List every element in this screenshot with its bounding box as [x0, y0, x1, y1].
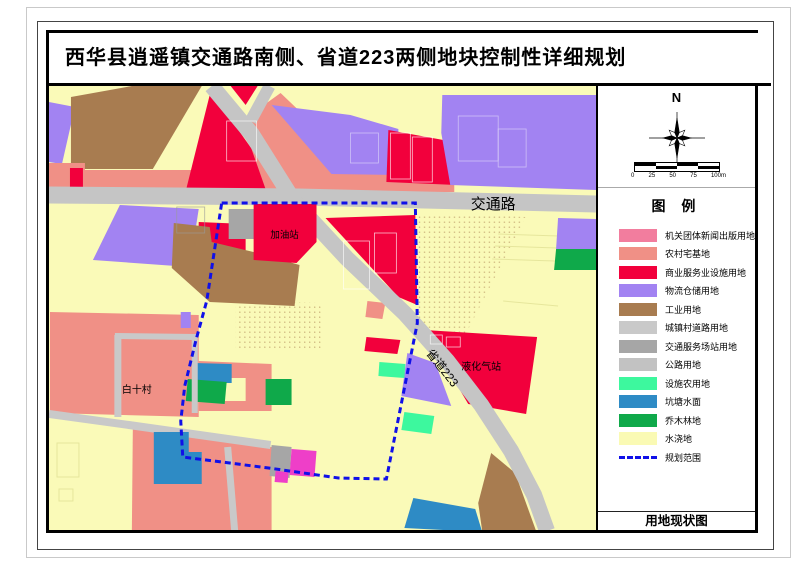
legend-title: 图 例: [598, 196, 755, 216]
legend-label: 机关团体新闻出版用地: [665, 229, 755, 242]
legend-label: 商业服务业设施用地: [665, 266, 746, 279]
legend-label: 农村宅基地: [665, 247, 710, 260]
legend-swatch: [619, 247, 657, 260]
scale-bar: [634, 162, 720, 172]
lpg-station-label: 液化气站: [461, 360, 501, 373]
panel-separator-top: [598, 187, 755, 188]
legend-label: 交通服务场站用地: [665, 340, 737, 353]
landuse-map-svg: 交通路 省道223 加油站 液化气站 白十村: [49, 86, 596, 530]
gas-station-label: 加油站: [270, 229, 299, 241]
legend-item-12: 规划范围: [598, 448, 755, 467]
legend-label: 规划范围: [665, 451, 701, 464]
scale-tick: 0: [631, 173, 634, 179]
legend-item-4: 工业用地: [598, 300, 755, 319]
legend-item-7: 公路用地: [598, 356, 755, 375]
legend-label: 坑塘水面: [665, 395, 701, 408]
north-label: N: [598, 90, 755, 105]
scale-tick: 25: [648, 173, 655, 179]
legend-swatch: [619, 266, 657, 279]
legend-swatch: [619, 321, 657, 334]
legend-swatch: [619, 340, 657, 353]
legend-swatch: [619, 414, 657, 427]
legend-swatch: [619, 432, 657, 445]
legend-swatch: [619, 377, 657, 390]
legend-item-3: 物流仓储用地: [598, 282, 755, 301]
legend-item-10: 乔木林地: [598, 411, 755, 430]
compass-rose-icon: [645, 106, 709, 170]
legend-label: 设施农用地: [665, 377, 710, 390]
legend-item-9: 坑塘水面: [598, 393, 755, 412]
page-title: 西华县逍遥镇交通路南侧、省道223两侧地块控制性详细规划: [49, 33, 771, 86]
sheet-name: 用地现状图: [598, 512, 755, 530]
village-label: 白十村: [122, 383, 152, 396]
legend-item-11: 水浇地: [598, 430, 755, 449]
legend-swatch: [619, 229, 657, 242]
scale-bar-ticks: 0255075100m: [631, 173, 726, 179]
legend-label: 公路用地: [665, 358, 701, 371]
planning-map-sheet: 西华县逍遥镇交通路南侧、省道223两侧地块控制性详细规划: [0, 0, 800, 565]
legend-item-2: 商业服务业设施用地: [598, 263, 755, 282]
legend-item-8: 设施农用地: [598, 374, 755, 393]
legend-swatch: [619, 358, 657, 371]
scale-tick: 100m: [711, 173, 726, 179]
legend-label: 水浇地: [665, 432, 692, 445]
legend-item-0: 机关团体新闻出版用地: [598, 226, 755, 245]
legend-panel: N 0255075100m 图 例 机关团体新闻出版用地农村宅基地商业服务业设施…: [598, 86, 755, 530]
legend-items: 机关团体新闻出版用地农村宅基地商业服务业设施用地物流仓储用地工业用地城镇村道路用…: [598, 226, 755, 467]
legend-swatch: [619, 395, 657, 408]
legend-swatch-dashed: [619, 456, 657, 459]
legend-label: 工业用地: [665, 303, 701, 316]
legend-label: 城镇村道路用地: [665, 321, 728, 334]
legend-swatch: [619, 284, 657, 297]
scale-tick: 75: [690, 173, 697, 179]
landuse-map: 交通路 省道223 加油站 液化气站 白十村: [49, 86, 596, 530]
legend-item-6: 交通服务场站用地: [598, 337, 755, 356]
legend-swatch: [619, 303, 657, 316]
legend-label: 乔木林地: [665, 414, 701, 427]
legend-label: 物流仓储用地: [665, 284, 719, 297]
scale-tick: 50: [669, 173, 676, 179]
legend-item-1: 农村宅基地: [598, 245, 755, 264]
legend-item-5: 城镇村道路用地: [598, 319, 755, 338]
jiaotong-road-label: 交通路: [471, 195, 516, 213]
